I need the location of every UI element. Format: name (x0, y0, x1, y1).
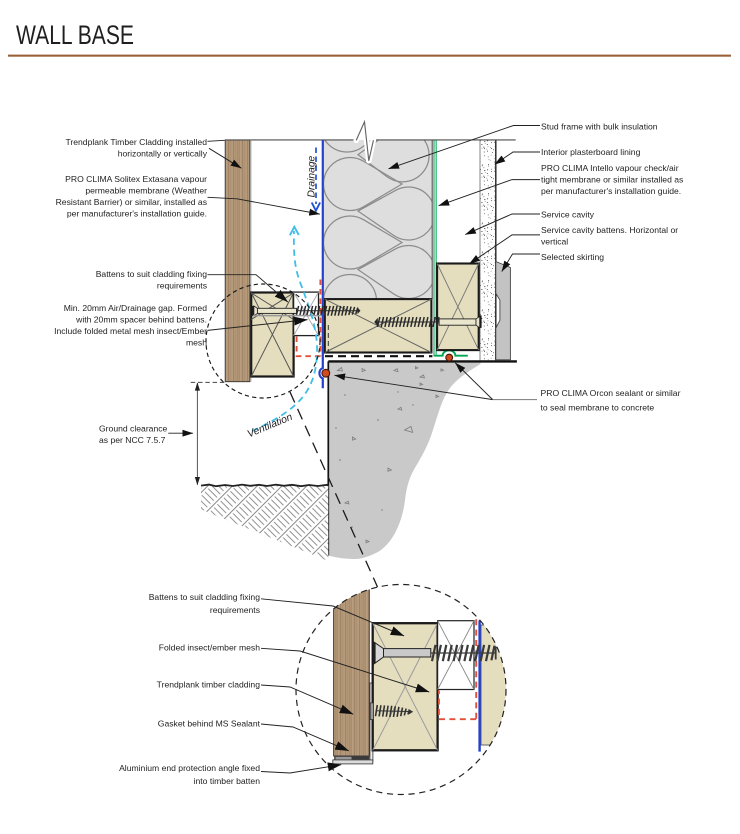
svg-text:per manufacturer's installatio: per manufacturer's installation guide. (541, 186, 681, 196)
svg-text:PRO CLIMA Solitex Extasana vap: PRO CLIMA Solitex Extasana vapour (65, 174, 207, 184)
svg-text:Interior plasterboard lining: Interior plasterboard lining (541, 147, 641, 157)
svg-text:Service cavity battens. Horizo: Service cavity battens. Horizontal or (541, 225, 678, 235)
svg-text:vertical: vertical (541, 236, 568, 246)
svg-text:Stud frame with bulk insulatio: Stud frame with bulk insulation (541, 121, 658, 131)
svg-text:Selected skirting: Selected skirting (541, 252, 604, 262)
svg-text:WALL BASE: WALL BASE (16, 20, 134, 50)
svg-text:mesh: mesh (186, 338, 207, 348)
svg-text:Trendplank Timber Cladding ins: Trendplank Timber Cladding installed (65, 137, 207, 147)
svg-text:Trendplank timber cladding: Trendplank timber cladding (157, 679, 261, 689)
svg-text:Battens to suit cladding fixin: Battens to suit cladding fixing (149, 592, 261, 602)
svg-text:to seal membrane to concrete: to seal membrane to concrete (541, 403, 655, 413)
svg-text:Battens to suit cladding fixin: Battens to suit cladding fixing (96, 269, 208, 279)
svg-text:horizontally or vertically: horizontally or vertically (118, 148, 208, 158)
svg-text:as per NCC 7.5.7: as per NCC 7.5.7 (99, 435, 166, 445)
svg-text:Aluminium end protection angle: Aluminium end protection angle fixed (119, 763, 260, 773)
svg-text:PRO CLIMA Intello vapour check: PRO CLIMA Intello vapour check/air (541, 163, 679, 173)
svg-text:per manufacturer's installatio: per manufacturer's installation guide. (67, 209, 207, 219)
svg-text:requirements: requirements (157, 281, 207, 291)
svg-text:Resistant Barrier) or similar,: Resistant Barrier) or similar, installed… (56, 197, 207, 207)
svg-text:Ventilation: Ventilation (246, 412, 295, 441)
svg-text:permeable membrane (Weather: permeable membrane (Weather (85, 186, 207, 196)
svg-text:Folded insect/ember mesh: Folded insect/ember mesh (159, 643, 260, 653)
svg-text:PRO CLIMA Orcon sealant or sim: PRO CLIMA Orcon sealant or similar (541, 388, 681, 398)
svg-text:into timber batten: into timber batten (194, 776, 261, 786)
svg-text:requirements: requirements (210, 605, 260, 615)
svg-text:Gasket behind MS Sealant: Gasket behind MS Sealant (158, 718, 261, 728)
svg-text:Drainage: Drainage (306, 155, 317, 197)
svg-text:Ground clearance: Ground clearance (99, 424, 168, 434)
svg-text:with 20mm spacer behind batten: with 20mm spacer behind battens. (75, 315, 207, 325)
svg-text:Service cavity: Service cavity (541, 209, 595, 219)
svg-text:Min. 20mm Air/Drainage gap. Fo: Min. 20mm Air/Drainage gap. Formed (64, 303, 208, 313)
svg-text:Include folded metal mesh inse: Include folded metal mesh insect/Ember (54, 326, 207, 336)
svg-text:tight membrane or similar inst: tight membrane or similar installed as (541, 175, 683, 185)
